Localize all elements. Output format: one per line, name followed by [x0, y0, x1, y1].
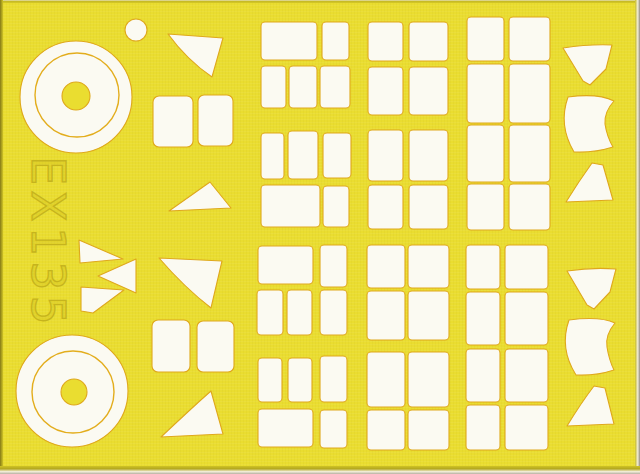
product-code-text: EX135 — [21, 156, 75, 329]
rect-mask — [367, 291, 405, 340]
rect-mask — [467, 125, 504, 182]
wheel-mask-top-hub — [62, 82, 90, 110]
rect-mask — [289, 66, 317, 108]
rect-mask — [261, 22, 317, 60]
rect-mask — [466, 349, 500, 402]
rect-mask — [467, 64, 504, 123]
rect-mask — [408, 245, 449, 288]
canopy-windscreen-mask — [567, 268, 616, 309]
canopy-main-mask — [565, 319, 615, 376]
rect-mask — [368, 130, 403, 181]
rect-mask — [466, 245, 500, 289]
rect-mask — [408, 352, 449, 407]
fan-blade-mask — [98, 259, 136, 293]
rect-mask — [261, 66, 286, 108]
rect-mask — [467, 17, 504, 61]
rect-mask — [320, 290, 347, 335]
square-mask — [152, 320, 190, 372]
rect-mask — [505, 405, 548, 450]
rect-mask — [367, 245, 405, 288]
rect-mask — [505, 292, 548, 345]
rect-mask — [509, 17, 550, 61]
rect-mask — [466, 292, 500, 345]
rect-mask — [408, 410, 449, 450]
rect-mask — [409, 67, 448, 115]
triangle-mask — [161, 391, 223, 437]
triangle-mask — [169, 182, 231, 211]
square-mask — [153, 96, 193, 147]
rect-mask — [287, 290, 312, 335]
rect-mask — [505, 349, 548, 402]
rect-mask — [320, 66, 350, 108]
rect-mask — [288, 358, 312, 402]
wedge-mask — [159, 258, 222, 308]
rect-mask — [368, 67, 403, 115]
rect-mask — [261, 185, 320, 227]
rect-mask — [409, 130, 448, 181]
canopy-windscreen-mask — [563, 45, 612, 85]
rect-mask — [320, 356, 347, 402]
rect-mask — [261, 133, 284, 179]
rect-mask — [409, 185, 448, 229]
rect-mask — [509, 64, 550, 123]
rect-mask — [258, 409, 313, 447]
rect-mask — [323, 133, 351, 178]
rect-mask — [368, 185, 403, 229]
canopy-main-mask — [564, 96, 614, 152]
wedge-mask — [168, 34, 223, 77]
canopy-rear-mask — [566, 163, 613, 202]
wheel-mask-bottom-hub — [61, 379, 87, 405]
mask-cutouts-layer — [0, 0, 640, 474]
rect-mask — [320, 410, 347, 448]
rect-mask — [258, 358, 282, 402]
square-mask — [197, 321, 234, 372]
rect-mask — [323, 186, 349, 227]
rect-mask — [367, 410, 405, 450]
rect-mask — [509, 184, 550, 230]
rect-mask — [505, 245, 548, 289]
rect-mask — [322, 22, 349, 60]
rect-mask — [467, 184, 504, 230]
rect-mask — [258, 246, 313, 284]
rect-mask — [466, 405, 500, 450]
rect-mask — [320, 245, 347, 287]
rect-mask — [509, 125, 550, 182]
rect-mask — [367, 352, 405, 407]
fan-blade-mask — [81, 287, 124, 313]
rect-mask — [257, 290, 283, 335]
small-circle-mask — [125, 19, 147, 41]
rect-mask — [409, 22, 448, 61]
rect-mask — [408, 291, 449, 340]
square-mask — [198, 95, 233, 146]
canopy-rear-mask — [567, 386, 614, 426]
rect-mask — [368, 22, 403, 61]
rect-mask — [288, 131, 318, 179]
mask-sheet: EX135 — [0, 0, 640, 474]
fan-blade-mask — [79, 240, 123, 263]
